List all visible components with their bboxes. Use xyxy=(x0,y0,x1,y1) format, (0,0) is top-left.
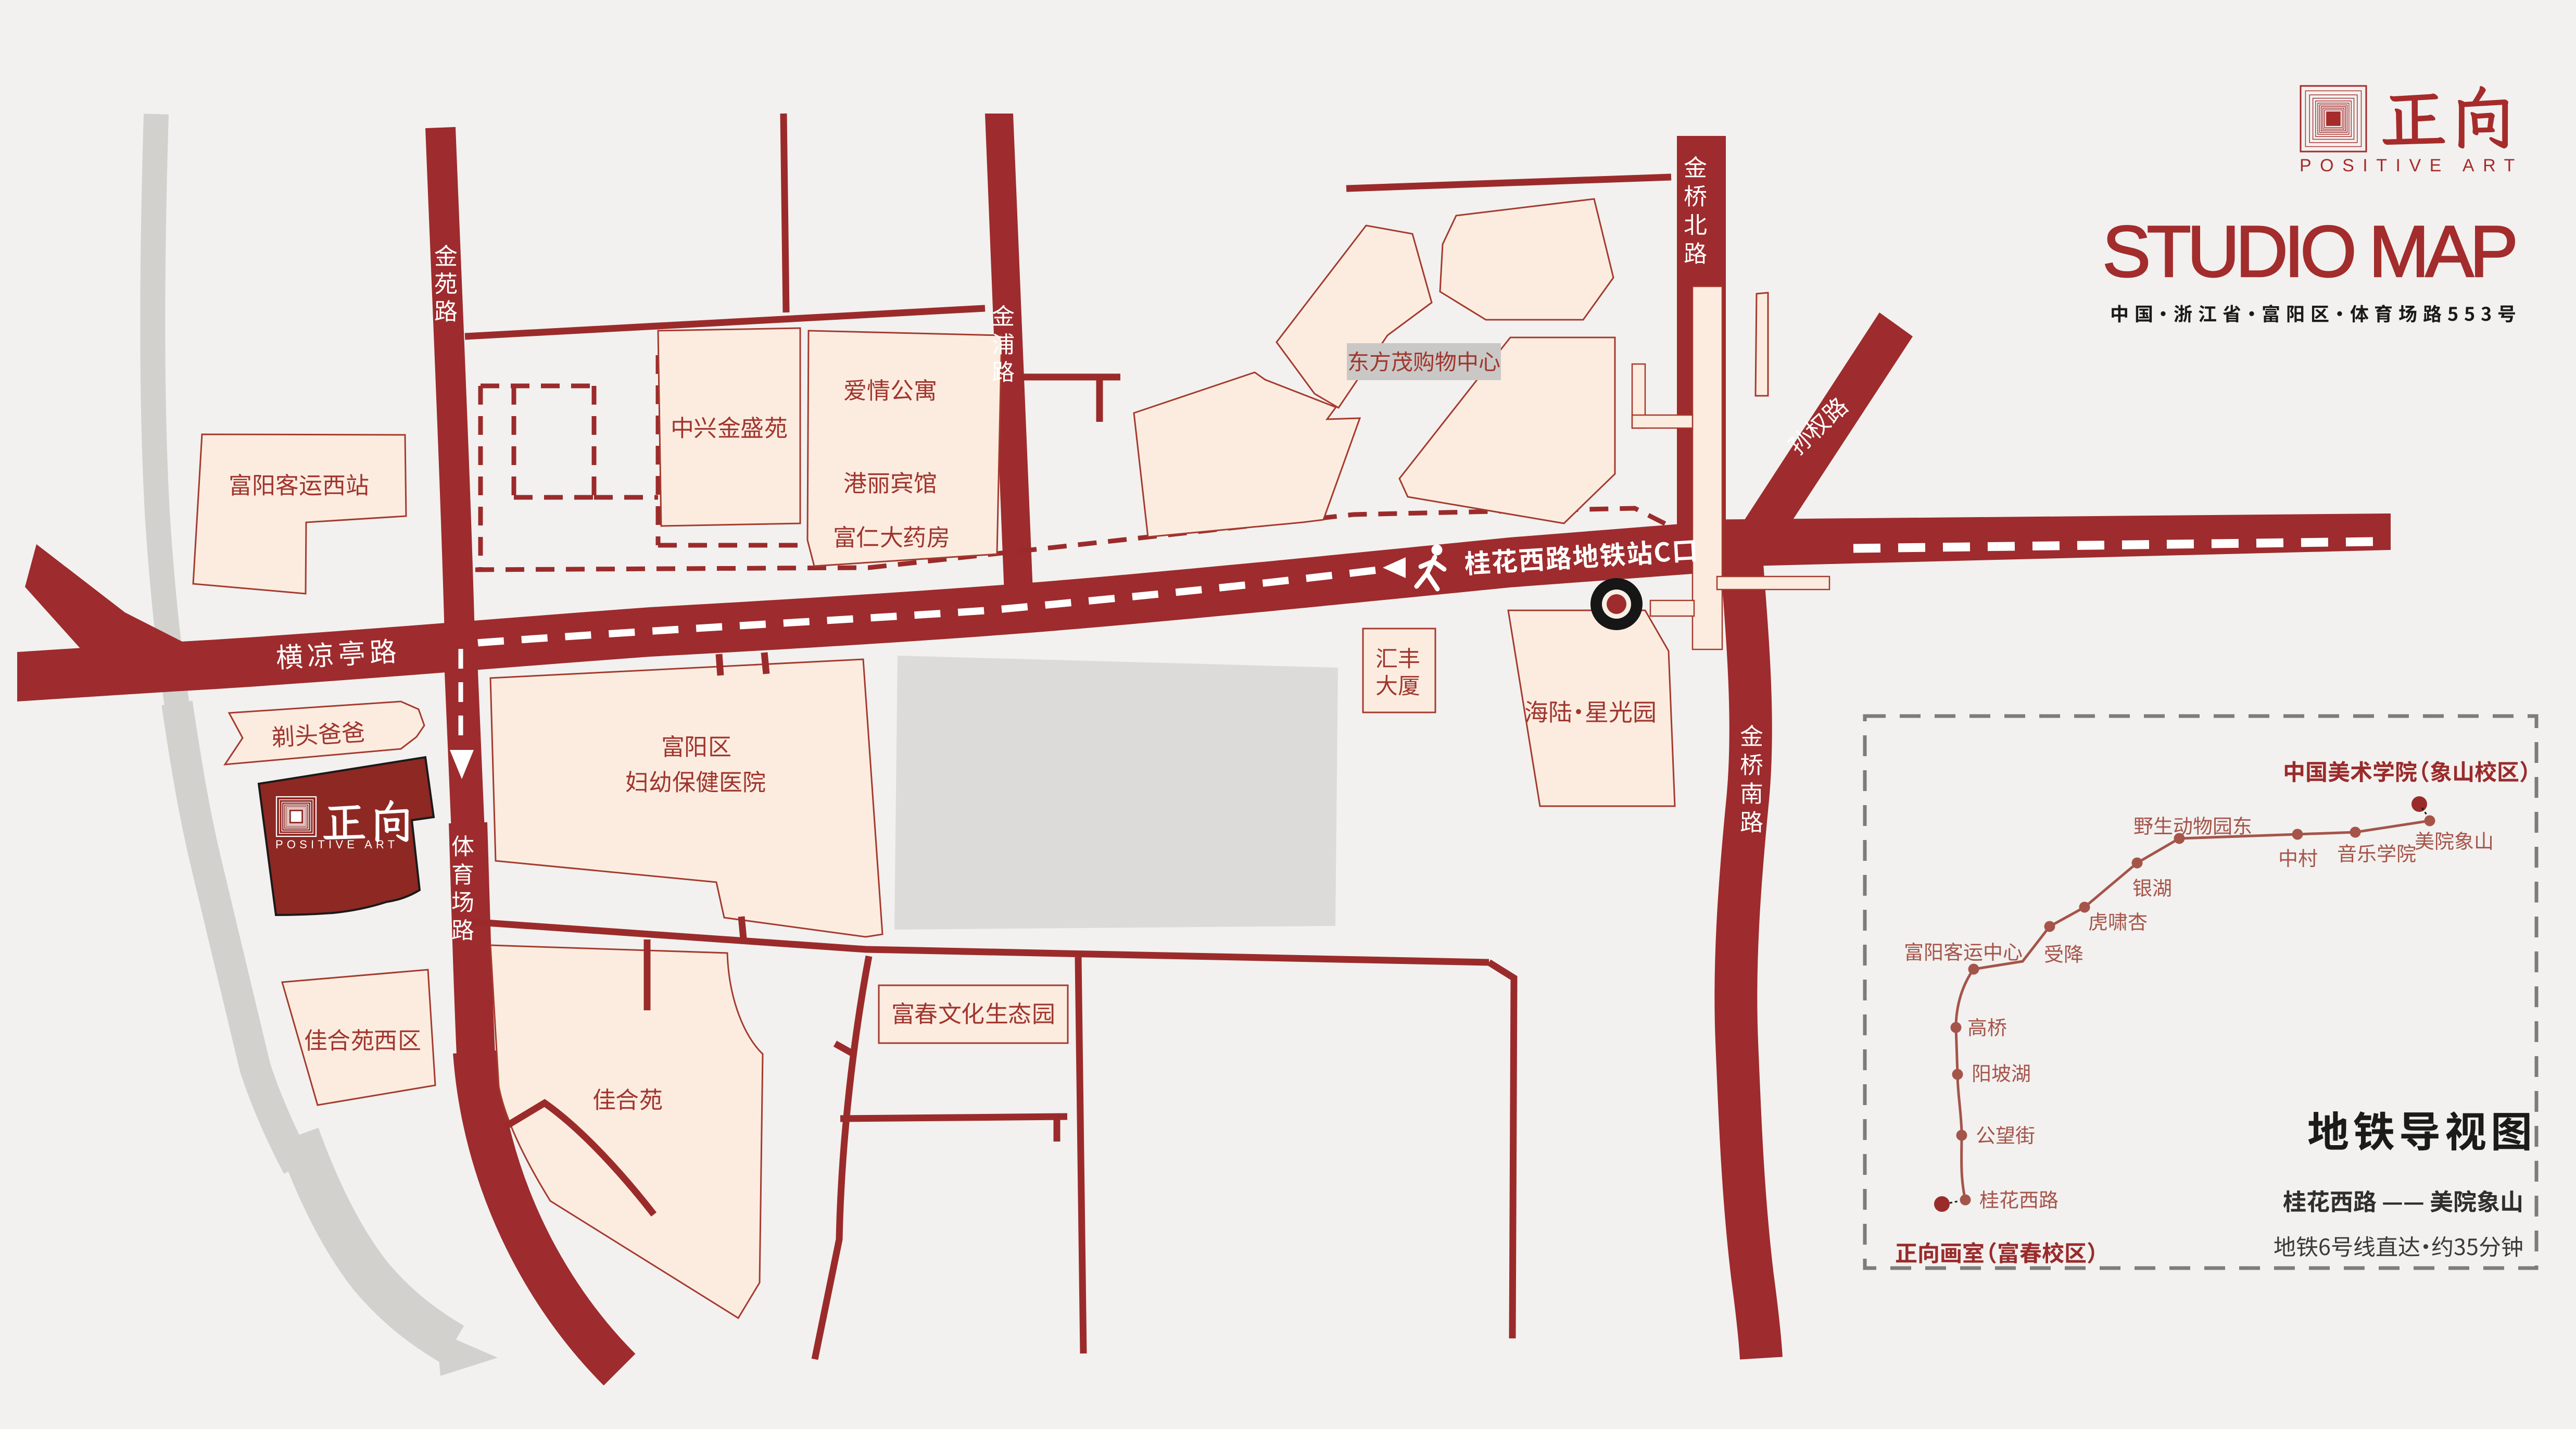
svg-text:POSITIVE ART: POSITIVE ART xyxy=(275,838,398,851)
svg-text:STUDIO MAP: STUDIO MAP xyxy=(2102,210,2515,292)
svg-text:POSITIVE ART: POSITIVE ART xyxy=(2300,156,2523,176)
